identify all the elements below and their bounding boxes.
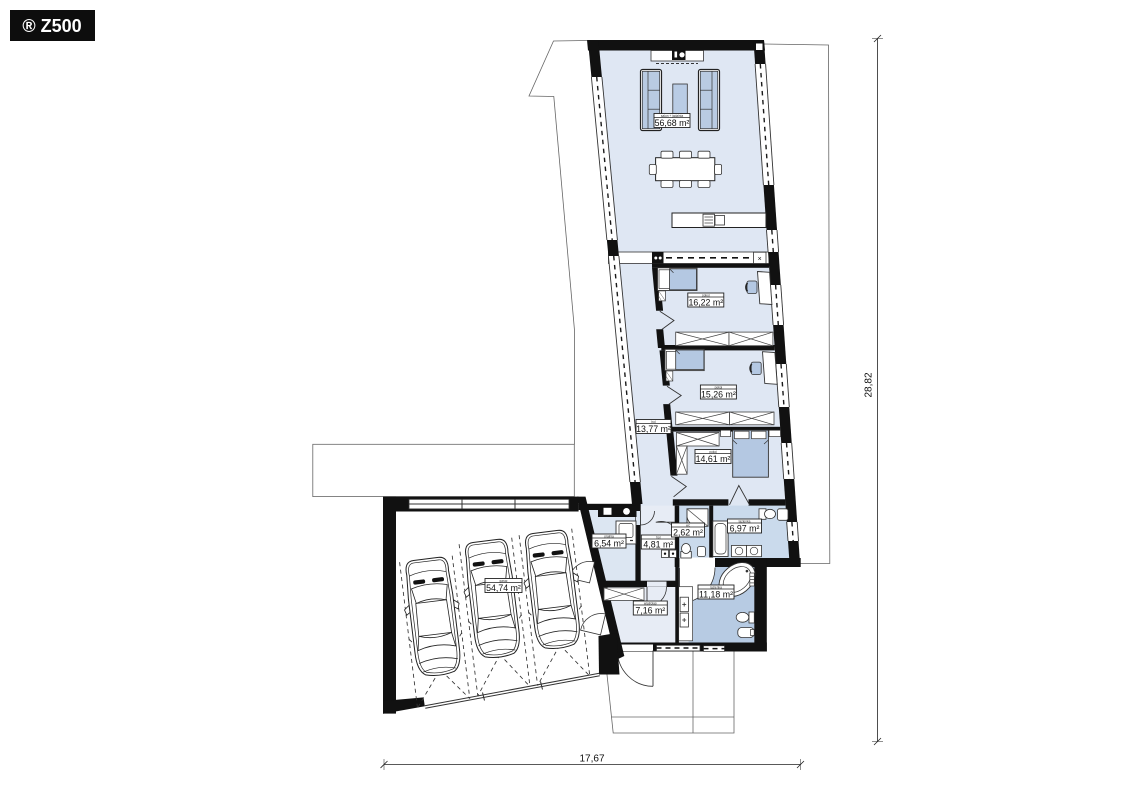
svg-text:56,68 m²: 56,68 m²: [655, 118, 690, 128]
svg-text:11,18 m²: 11,18 m²: [699, 589, 733, 599]
svg-text:15,26 m²: 15,26 m²: [701, 389, 736, 399]
svg-text:2,62 m²: 2,62 m²: [673, 527, 703, 537]
svg-text:6,54 m²: 6,54 m²: [594, 538, 624, 548]
svg-text:28,82: 28,82: [864, 372, 875, 397]
svg-text:14,61 m²: 14,61 m²: [696, 454, 731, 464]
svg-text:4,81 m²: 4,81 m²: [643, 539, 673, 549]
svg-text:16,22 m²: 16,22 m²: [688, 297, 723, 307]
svg-text:7,16 m²: 7,16 m²: [635, 605, 665, 615]
svg-text:17,67: 17,67: [579, 754, 604, 765]
svg-text:6,97 m²: 6,97 m²: [730, 523, 760, 533]
svg-text:13,77 m²: 13,77 m²: [636, 424, 671, 434]
svg-text:® Z500: ® Z500: [22, 16, 81, 36]
svg-text:54,74 m²: 54,74 m²: [486, 583, 521, 593]
svg-text:×: ×: [758, 256, 762, 263]
